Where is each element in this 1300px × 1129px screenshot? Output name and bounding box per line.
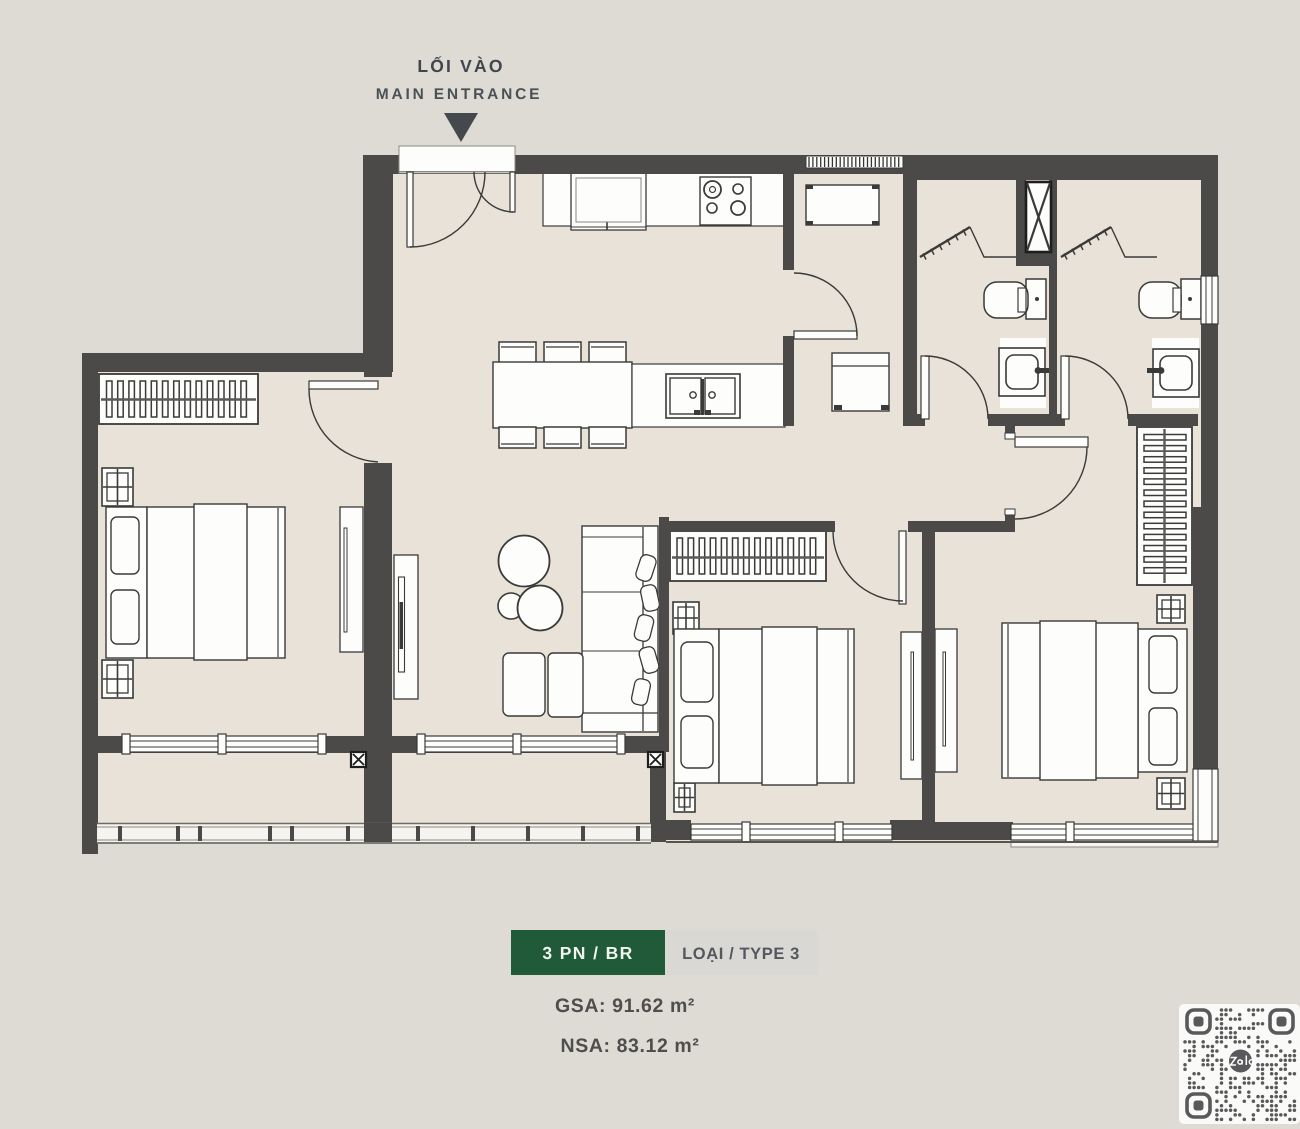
- svg-text:LỐI VÀO: LỐI VÀO: [417, 56, 504, 76]
- svg-text:GSA: 91.62 m²: GSA: 91.62 m²: [555, 995, 695, 1017]
- svg-text:LOẠI / TYPE 3: LOẠI / TYPE 3: [682, 945, 800, 963]
- svg-text:3 PN / BR: 3 PN / BR: [542, 943, 633, 963]
- svg-text:NSA: 83.12 m²: NSA: 83.12 m²: [561, 1035, 700, 1057]
- svg-text:MAIN ENTRANCE: MAIN ENTRANCE: [376, 86, 542, 103]
